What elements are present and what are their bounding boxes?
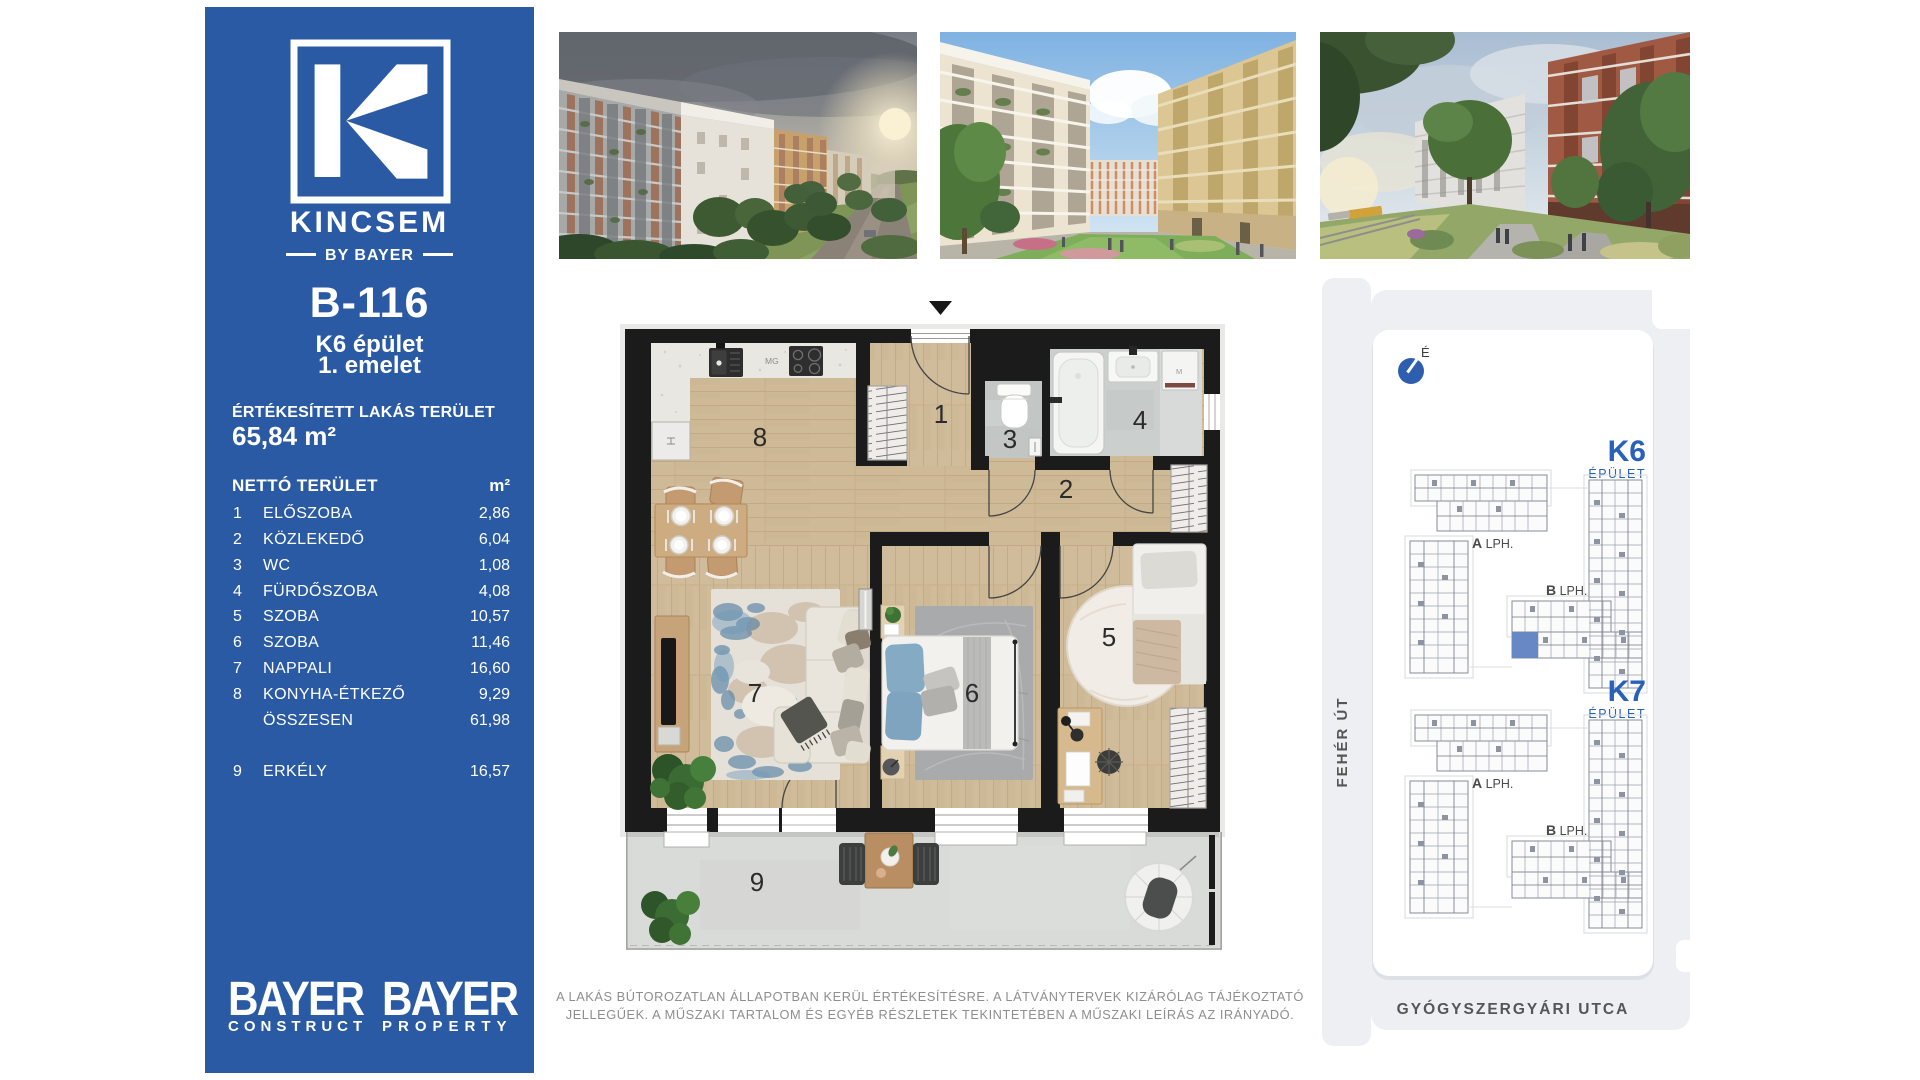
svg-text:5: 5 [1102, 622, 1116, 652]
svg-text:6: 6 [965, 678, 979, 708]
svg-text:GYÓGYSZERGYÁRI UTCA: GYÓGYSZERGYÁRI UTCA [1397, 1000, 1630, 1018]
svg-text:B LPH.: B LPH. [1546, 582, 1587, 598]
svg-text:ÉPÜLET: ÉPÜLET [1588, 466, 1646, 481]
svg-text:M: M [1176, 367, 1182, 376]
svg-text:K7: K7 [1608, 675, 1646, 708]
svg-text:7: 7 [748, 678, 762, 708]
svg-text:8: 8 [753, 422, 767, 452]
svg-text:A LPH.: A LPH. [1472, 775, 1513, 791]
svg-text:9: 9 [750, 867, 764, 897]
svg-text:B LPH.: B LPH. [1546, 822, 1587, 838]
svg-text:A LPH.: A LPH. [1472, 535, 1513, 551]
svg-text:1: 1 [934, 399, 948, 429]
svg-text:É: É [1421, 345, 1430, 360]
svg-text:MG: MG [765, 356, 779, 366]
svg-text:4: 4 [1133, 405, 1147, 435]
svg-text:2: 2 [1059, 474, 1073, 504]
svg-text:3: 3 [1003, 424, 1017, 454]
svg-text:K6: K6 [1608, 435, 1646, 468]
svg-text:ÉPÜLET: ÉPÜLET [1588, 706, 1646, 721]
svg-text:FEHÉR ÚT: FEHÉR ÚT [1333, 697, 1351, 788]
